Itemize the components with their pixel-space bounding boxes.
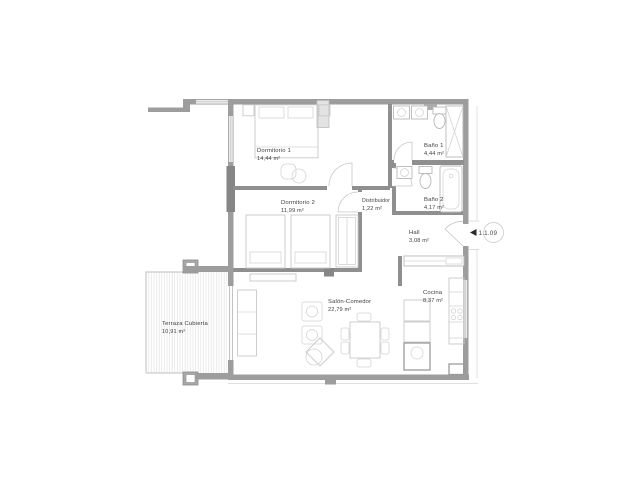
hob-burner xyxy=(458,309,462,313)
label-terraza-name: Terraza Cubierta xyxy=(162,321,209,327)
wall-bottom-stub xyxy=(325,378,336,385)
wall-salon-north xyxy=(234,268,359,272)
dining-table xyxy=(350,322,380,358)
entrance-arrow-icon xyxy=(470,229,477,236)
armchair xyxy=(302,302,322,321)
terrace-top-wall xyxy=(183,266,233,272)
counter-corner xyxy=(449,364,464,375)
furniture-dormitorio2 xyxy=(246,215,358,268)
label-cocina-name: Cocina xyxy=(423,290,443,296)
wall-bano2-west xyxy=(392,186,396,215)
floorplan-page: Dormitorio 1 14,44 m² Baño 1 4,44 m² Dor… xyxy=(0,0,640,480)
dining-chair xyxy=(381,342,389,354)
wall-dorm1-east xyxy=(388,104,392,188)
wall-bath-divider xyxy=(412,160,464,165)
fixtures-bano1 xyxy=(394,106,464,157)
label-dormitorio2-name: Dormitorio 2 xyxy=(281,200,315,206)
toilet-bowl xyxy=(420,174,431,189)
wall-dorm2-east-top xyxy=(358,188,362,192)
pillow xyxy=(288,107,313,118)
label-distribuidor-area: 1,22 m² xyxy=(362,206,382,212)
hob-burner xyxy=(458,315,462,319)
dining-chair xyxy=(341,342,349,354)
wall-hall-stub xyxy=(398,256,402,286)
hall-closet xyxy=(404,256,464,266)
wall-bottom xyxy=(228,375,469,381)
wall-dorm-divider-left xyxy=(234,186,328,190)
door-dormitorio2 xyxy=(338,192,358,212)
dining-chair xyxy=(341,328,349,340)
hob-burner xyxy=(451,315,455,319)
wall-bano2-west-top xyxy=(392,163,396,168)
armchair xyxy=(302,326,322,344)
label-cocina-area: 8,37 m² xyxy=(423,298,443,304)
label-distribuidor-name: Distribuidor xyxy=(362,198,390,204)
door-entrance xyxy=(445,221,463,246)
label-terraza-area: 10,91 m² xyxy=(162,329,185,335)
pillow xyxy=(259,107,284,118)
wall-dorm2-east xyxy=(358,212,362,272)
sideboard xyxy=(250,274,296,281)
label-bano1-name: Baño 1 xyxy=(424,143,444,149)
facade-stub-horizontal xyxy=(148,108,183,113)
dining-chair xyxy=(357,359,371,367)
label-bano2-area: 4,17 m² xyxy=(424,205,444,211)
label-hall-area: 3,08 m² xyxy=(409,238,429,244)
single-bed xyxy=(246,215,285,268)
label-salon-area: 22,79 m² xyxy=(328,307,351,313)
sink xyxy=(394,106,410,119)
terrace-bottom-wall xyxy=(196,373,230,380)
side-table xyxy=(292,169,306,183)
sofa xyxy=(238,290,257,356)
wall-dorm-divider-right xyxy=(352,186,390,190)
rug-circle xyxy=(306,349,322,365)
wall-salon-north-stub xyxy=(324,268,334,277)
label-hall-name: Hall xyxy=(409,230,420,236)
kitchen-sink xyxy=(411,347,423,359)
label-dormitorio2-area: 11,99 m² xyxy=(281,208,304,214)
toilet-cistern xyxy=(433,107,446,114)
unit-marker: 1.1.09 xyxy=(470,223,504,243)
furniture-salon xyxy=(238,274,390,367)
toilet-bowl xyxy=(434,114,445,129)
single-bed xyxy=(291,215,330,268)
terrace-pillar-bottom-core xyxy=(186,375,195,383)
facade-stub-vertical xyxy=(183,99,190,112)
door-dormitorio1 xyxy=(329,163,352,186)
armchair-seat xyxy=(307,306,318,317)
floorplan-drawing: Dormitorio 1 14,44 m² Baño 1 4,44 m² Dor… xyxy=(0,0,640,480)
pillow xyxy=(295,252,326,263)
wall-left-salon-bottom xyxy=(228,360,234,375)
sink xyxy=(412,106,428,119)
dining-chair xyxy=(381,328,389,340)
cabinet xyxy=(404,322,430,342)
hob-burner xyxy=(451,309,455,313)
wall-left-salon-top xyxy=(228,270,234,286)
label-dormitorio1-name: Dormitorio 1 xyxy=(257,148,291,154)
door-bano1 xyxy=(394,142,412,160)
armchair-seat xyxy=(307,330,318,341)
unit-label: 1.1.09 xyxy=(479,230,498,237)
label-salon-name: Salón-Comedor xyxy=(328,299,371,305)
nightstand xyxy=(243,105,254,116)
pillow xyxy=(250,252,281,263)
label-dormitorio1-area: 14,44 m² xyxy=(257,156,280,162)
label-bano1-area: 4,44 m² xyxy=(424,151,444,157)
label-bano2-name: Baño 2 xyxy=(424,197,444,203)
dining-chair xyxy=(357,313,371,321)
toilet-cistern xyxy=(419,167,432,174)
